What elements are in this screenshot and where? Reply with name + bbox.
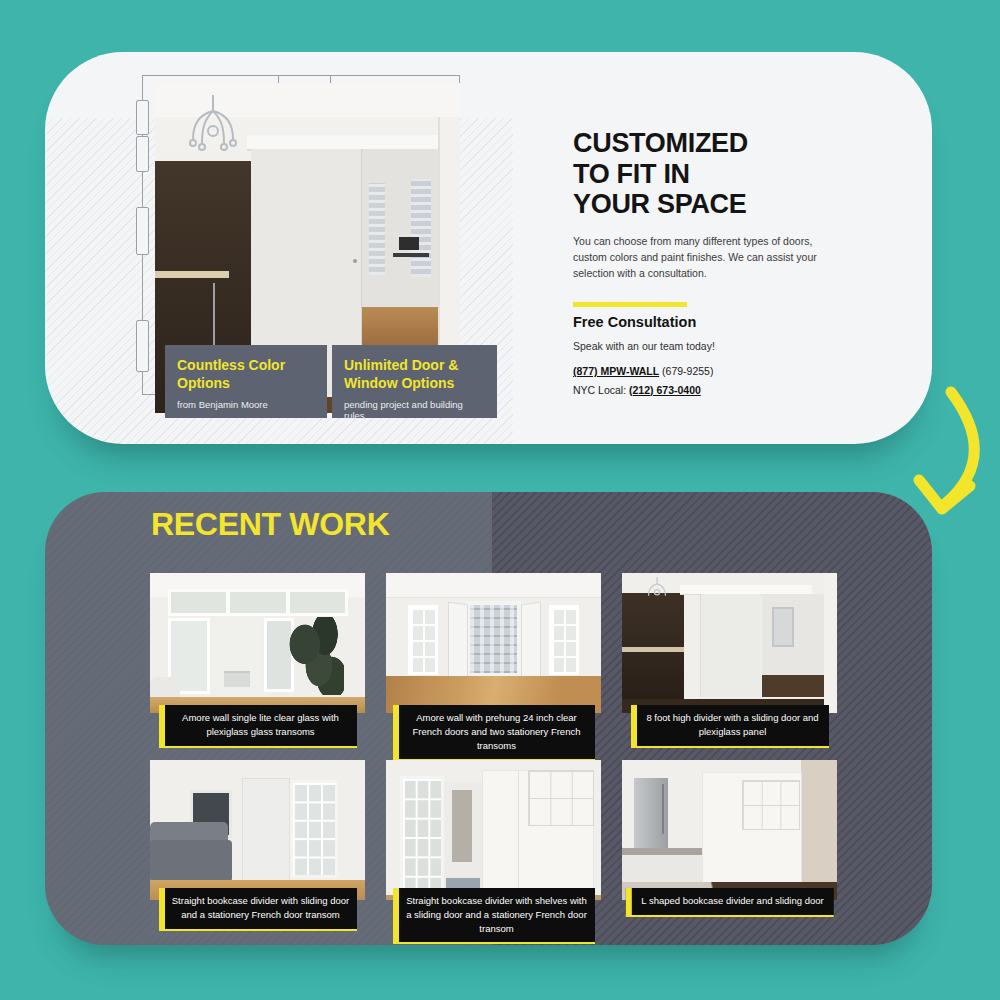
wall-edge (824, 573, 837, 713)
french-panel-right (549, 605, 579, 675)
work-photo-sunroom[interactable] (150, 573, 365, 713)
feature-title: Countless Color Options (177, 357, 315, 392)
work-item: L shaped bookcase divider and sliding do… (622, 760, 837, 945)
kitchen-counter (622, 647, 684, 652)
phone-line-local: NYC Local: (212) 673-0400 (573, 381, 873, 399)
phone-local-label: NYC Local: (573, 384, 629, 396)
kitchen-counter (155, 271, 229, 278)
hero-heading-line: TO FIT IN (573, 159, 873, 190)
recent-work-heading: RECENT WORK (151, 506, 389, 543)
blueprint-hinge (136, 320, 149, 372)
consultation-title: Free Consultation (573, 314, 873, 330)
work-caption: Amore wall with prehung 24 inch clear Fr… (393, 705, 595, 761)
feature-card-color-options: Countless Color Options from Benjamin Mo… (165, 345, 327, 418)
plant (288, 617, 344, 695)
hero-text-column: CUSTOMIZED TO FIT IN YOUR SPACE You can … (573, 128, 873, 399)
kitchen-cabinet (622, 855, 702, 885)
fridge-handle (662, 784, 664, 834)
body-line: selection with a consultation. (573, 265, 873, 281)
consultation-subtitle: Speak with an our team today! (573, 340, 873, 352)
hero-card: Countless Color Options from Benjamin Mo… (45, 52, 932, 444)
phone-line-main: (877) MPW-WALL (679-9255) (573, 362, 873, 380)
phone-local-link[interactable]: (212) 673-0400 (629, 384, 701, 396)
shelf-grid (528, 770, 594, 826)
hero-body-text: You can choose from many different types… (573, 233, 873, 282)
dark-floor (762, 675, 824, 697)
recent-work-card: RECENT WORK Amore wall single lite clear… (45, 492, 932, 945)
page: Countless Color Options from Benjamin Mo… (0, 0, 1000, 1000)
work-caption: Straight bookcase divider with shelves w… (393, 888, 595, 944)
work-caption: Amore wall single lite clear glass with … (159, 705, 357, 748)
chandelier-icon (642, 577, 672, 605)
hero-heading-line: CUSTOMIZED (573, 128, 873, 159)
feature-subtitle: from Benjamin Moore (177, 399, 315, 410)
inner-door (452, 790, 472, 862)
blueprint-hinge (136, 207, 149, 255)
panel-seam (518, 770, 519, 900)
work-caption: 8 foot high divider with a sliding door … (631, 705, 829, 748)
open-door-left (448, 602, 468, 683)
transom-pane (171, 592, 226, 613)
chandelier-icon (185, 95, 241, 161)
window (772, 607, 794, 647)
feature-title: Unlimited Door & Window Options (344, 357, 485, 392)
work-photo-divider[interactable] (622, 573, 837, 713)
work-item: Straight bookcase divider with sliding d… (150, 760, 365, 945)
transom-pane (290, 592, 345, 613)
work-photo-french-doors[interactable] (386, 573, 601, 713)
french-panel-left (408, 605, 438, 675)
sliding-panel (700, 594, 761, 697)
window (369, 183, 385, 275)
work-photo-l-bookcase[interactable] (622, 760, 837, 900)
sliding-panel (242, 778, 290, 882)
phone-main-extension: (679-9255) (659, 365, 713, 377)
transom-windows (168, 589, 348, 616)
shelf-grid (742, 780, 800, 830)
blueprint-hinge (136, 136, 149, 172)
work-caption: Straight bookcase divider with sliding d… (159, 888, 357, 931)
desk (393, 253, 429, 257)
sofa (150, 840, 232, 882)
window (411, 179, 431, 277)
phone-numbers: (877) MPW-WALL (679-9255) NYC Local: (21… (573, 362, 873, 399)
work-photo-bookcase[interactable] (386, 760, 601, 900)
yellow-accent-bar (573, 302, 687, 307)
feature-subtitle: pending project and building rules (344, 399, 485, 421)
transom-pane (230, 592, 285, 613)
monitor (399, 237, 419, 250)
kitchen-counter (622, 848, 702, 855)
work-caption: L shaped bookcase divider and sliding do… (625, 888, 833, 917)
phone-main-link[interactable]: (877) MPW-WALL (573, 365, 659, 377)
body-line: custom colors and paint finishes. We can… (573, 249, 873, 265)
city-window (466, 601, 521, 677)
work-item: Straight bookcase divider with shelves w… (386, 760, 601, 945)
panel-handle (353, 259, 357, 263)
feature-card-door-options: Unlimited Door & Window Options pending … (332, 345, 497, 418)
hero-heading-line: YOUR SPACE (573, 189, 873, 220)
radiator (224, 671, 250, 687)
sliding-panel (251, 149, 362, 363)
cabinet-handle (213, 283, 215, 345)
body-line: You can choose from many different types… (573, 233, 873, 249)
french-door (400, 776, 444, 898)
open-door-right (521, 602, 541, 683)
work-photo-living-room[interactable] (150, 760, 365, 900)
french-door (290, 780, 338, 878)
accent-wall (801, 760, 837, 900)
ceiling (386, 573, 601, 598)
blueprint-hinge (136, 100, 149, 135)
